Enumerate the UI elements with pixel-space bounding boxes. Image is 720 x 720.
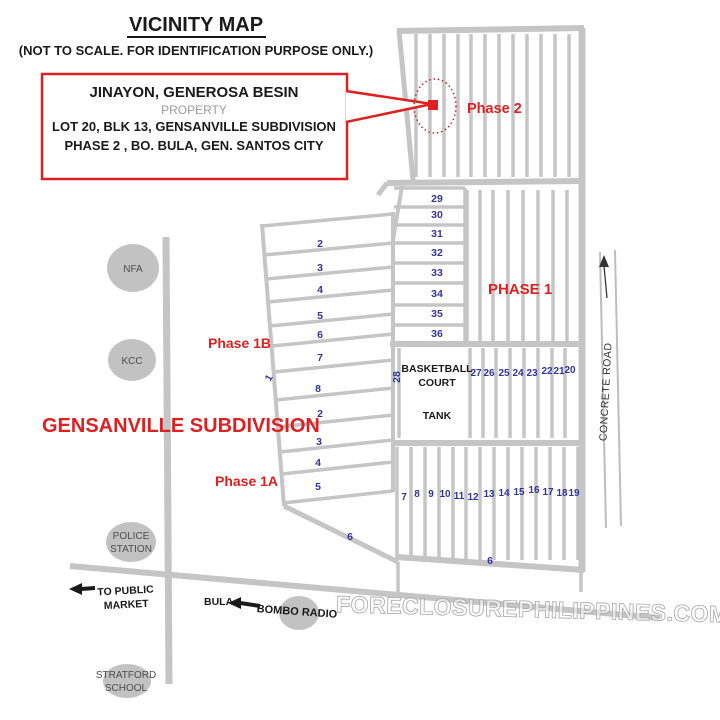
lot-number: 4 bbox=[315, 457, 321, 469]
phase1-label: PHASE 1 bbox=[488, 281, 552, 298]
lot-number-6-bottom: 6 bbox=[487, 555, 493, 567]
watermark: FORECLOSUREPHILIPPINES.COM bbox=[336, 591, 720, 627]
page-subtitle: (NOT TO SCALE. FOR IDENTIFICATION PURPOS… bbox=[19, 43, 373, 58]
lot-number: 4 bbox=[317, 284, 323, 296]
lot-number: 9 bbox=[428, 489, 434, 500]
basketball-court-label-line2: COURT bbox=[418, 377, 456, 389]
lot-number: 8 bbox=[414, 489, 420, 500]
lot-number: 14 bbox=[498, 488, 510, 499]
police-station-label-line1: POLICE bbox=[113, 531, 150, 542]
to-public-market: TO PUBLIC MARKET bbox=[97, 584, 155, 613]
stratford-school-label-line1: STRATFORD bbox=[96, 670, 156, 681]
phase2-bottom-road bbox=[387, 181, 584, 183]
phase1a-label: Phase 1A bbox=[215, 473, 278, 489]
lot-number: 22 bbox=[541, 366, 553, 377]
lot-number: 17 bbox=[542, 487, 554, 498]
property-marker bbox=[428, 100, 438, 110]
tank-label: TANK bbox=[423, 410, 452, 422]
lot-number-6-left: 6 bbox=[347, 531, 353, 543]
vicinity-map-canvas: CONCRETE ROAD NFA KCC POLICE STATION STR… bbox=[0, 0, 720, 720]
stratford-school-label-line2: SCHOOL bbox=[105, 683, 148, 694]
lot-number: 15 bbox=[513, 487, 525, 498]
basketball-court-label-line1: BASKETBALL bbox=[401, 363, 473, 375]
phase1b-label: Phase 1B bbox=[208, 335, 271, 351]
to-public-market-label-line2: MARKET bbox=[104, 598, 150, 612]
concrete-road: CONCRETE ROAD bbox=[597, 250, 621, 528]
lot-number: 16 bbox=[528, 485, 540, 496]
property-address-line1: LOT 20, BLK 13, GENSANVILLE SUBDIVISION bbox=[52, 119, 336, 134]
arrow-left-shaft bbox=[81, 588, 95, 589]
lot-number: 24 bbox=[512, 368, 524, 379]
lot-number: 23 bbox=[526, 368, 538, 379]
phase2-corner-hook bbox=[378, 183, 387, 195]
lot-number: 8 bbox=[315, 383, 321, 395]
lot-number: 7 bbox=[401, 492, 407, 503]
block2936-lot-lines bbox=[394, 188, 465, 325]
lot-number: 25 bbox=[498, 368, 510, 379]
lot-number: 5 bbox=[317, 310, 323, 322]
property-owner: JINAYON, GENEROSA BESIN bbox=[90, 84, 299, 101]
lot-number: 19 bbox=[568, 488, 580, 499]
lot-number: 7 bbox=[317, 352, 323, 364]
arrow-left-icon bbox=[69, 583, 82, 595]
lot-number: 3 bbox=[317, 262, 323, 274]
lot-number: 30 bbox=[431, 209, 443, 221]
nfa-label: NFA bbox=[123, 264, 143, 275]
phase1-lot-lines bbox=[467, 190, 567, 342]
lot-number: 2 bbox=[317, 408, 323, 420]
lot-number: 5 bbox=[315, 481, 321, 493]
lot-number: 12 bbox=[467, 492, 479, 503]
lot-number: 20 bbox=[564, 365, 576, 376]
north-arrow-shaft bbox=[604, 266, 607, 298]
diagonal-road bbox=[284, 506, 398, 562]
lot-number: 34 bbox=[431, 288, 443, 300]
lot-number: 10 bbox=[439, 489, 451, 500]
header: VICINITY MAP (NOT TO SCALE. FOR IDENTIFI… bbox=[19, 14, 373, 58]
bula-label: BULA bbox=[204, 596, 234, 608]
lot-number: 13 bbox=[483, 489, 495, 500]
page-title: VICINITY MAP bbox=[129, 14, 263, 36]
landmarks: NFA KCC POLICE STATION STRATFORD SCHOOL bbox=[96, 244, 319, 698]
vicinity-map: CONCRETE ROAD NFA KCC POLICE STATION STR… bbox=[0, 0, 720, 720]
lot-number: 31 bbox=[431, 228, 443, 240]
to-public-market-label-line1: TO PUBLIC bbox=[97, 584, 154, 599]
property-address-line2: PHASE 2 , BO. BULA, GEN. SANTOS CITY bbox=[64, 138, 323, 153]
road-top bbox=[397, 28, 584, 31]
lot-number: 6 bbox=[317, 329, 323, 341]
lot-number: 33 bbox=[431, 267, 443, 279]
phase2-label: Phase 2 bbox=[467, 101, 522, 117]
strip-left-edge bbox=[262, 224, 284, 506]
band2027-lot-lines bbox=[470, 348, 565, 438]
police-station-ellipse bbox=[106, 522, 156, 562]
subdivision-name: GENSANVILLE SUBDIVISION bbox=[42, 415, 320, 437]
property-type-label: PROPERTY bbox=[161, 103, 227, 117]
left-road bbox=[166, 237, 169, 684]
lot-number: 35 bbox=[431, 308, 443, 320]
lot-number: 26 bbox=[483, 368, 495, 379]
bottomblock-lot-lines bbox=[397, 447, 578, 560]
concrete-road-label: CONCRETE ROAD bbox=[597, 342, 614, 441]
concrete-road-right-line bbox=[615, 250, 621, 526]
lot-number: 11 bbox=[454, 491, 465, 502]
kcc-label: KCC bbox=[121, 356, 142, 367]
lot-number: 18 bbox=[556, 488, 568, 499]
lot-number: 36 bbox=[431, 328, 443, 340]
lot-number: 21 bbox=[553, 366, 565, 377]
lot-number: 29 bbox=[431, 193, 443, 205]
lot-number: 32 bbox=[431, 247, 443, 259]
property-callout: JINAYON, GENEROSA BESIN PROPERTY LOT 20,… bbox=[42, 74, 456, 179]
police-station-label-line2: STATION bbox=[110, 544, 152, 555]
lot-number: 3 bbox=[316, 436, 322, 448]
lot-number: 2 bbox=[317, 238, 323, 250]
